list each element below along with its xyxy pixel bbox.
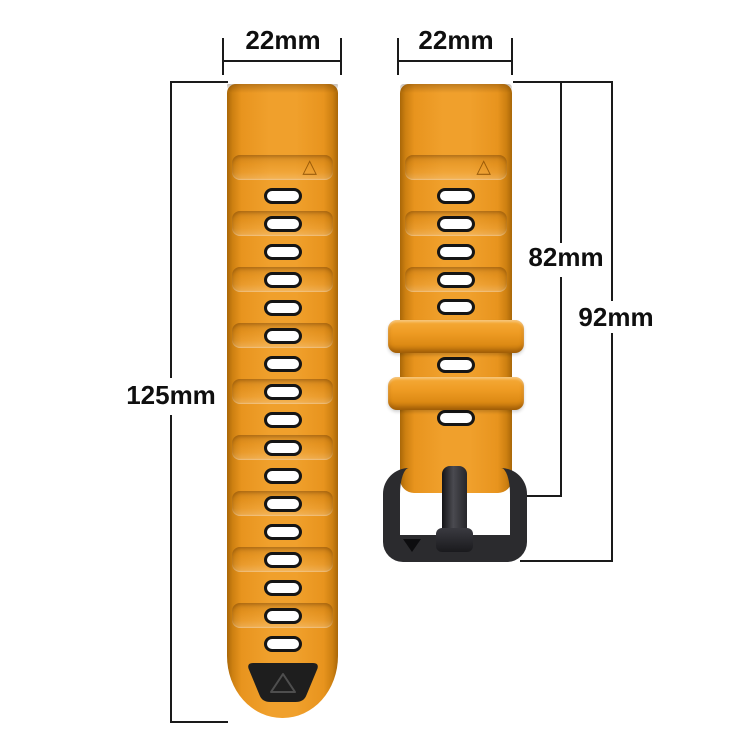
strap-hole xyxy=(437,244,475,260)
left-strap: △ xyxy=(227,84,338,718)
dim-82-line-lower xyxy=(560,277,562,497)
dim-right-width-tick-left xyxy=(397,38,399,75)
triangle-marker-icon: △ xyxy=(476,157,491,176)
dim-92-line-upper xyxy=(611,82,613,301)
strap-dimension-diagram: △ △ 22mm 22mm 125mm 82mm 92mm xyxy=(0,0,750,750)
strap-hole xyxy=(264,440,302,456)
strap-hole xyxy=(437,188,475,204)
strap-hole xyxy=(264,216,302,232)
dim-left-width-tick-left xyxy=(222,38,224,75)
strap-hole xyxy=(264,188,302,204)
strap-hole xyxy=(437,216,475,232)
buckle-prong-base xyxy=(436,528,473,552)
strap-hole xyxy=(437,299,475,315)
dim-125-line-upper xyxy=(170,81,172,378)
strap-tip-black xyxy=(242,661,324,705)
dim-125-ext-top xyxy=(171,81,228,83)
strap-hole xyxy=(264,412,302,428)
strap-hole xyxy=(437,272,475,288)
strap-hole xyxy=(264,580,302,596)
dim-92-line-lower xyxy=(611,333,613,562)
dim-left-width-tick-right xyxy=(340,38,342,75)
dim-92-tick-bottom xyxy=(520,560,613,562)
strap-hole xyxy=(264,468,302,484)
strap-hole xyxy=(264,272,302,288)
dim-left-width-label: 22mm xyxy=(245,25,320,56)
dim-82-tick-bottom xyxy=(527,495,562,497)
strap-hole xyxy=(264,244,302,260)
triangle-panel: △ xyxy=(405,155,507,180)
dim-right-width-tick-right xyxy=(511,38,513,75)
buckle-arrow-icon xyxy=(403,539,421,552)
dim-right-width-line xyxy=(397,60,513,62)
strap-hole xyxy=(264,552,302,568)
strap-hole xyxy=(437,357,475,373)
dim-82-label: 82mm xyxy=(528,242,603,273)
strap-hole xyxy=(264,636,302,652)
dim-92-label: 92mm xyxy=(578,302,653,333)
strap-hole xyxy=(437,410,475,426)
strap-hole xyxy=(264,300,302,316)
dim-125-line-lower xyxy=(170,415,172,723)
triangle-panel: △ xyxy=(232,155,333,180)
dim-125-label: 125mm xyxy=(126,380,216,411)
dim-82-line-upper xyxy=(560,82,562,243)
dim-right-width-label: 22mm xyxy=(418,25,493,56)
triangle-marker-icon: △ xyxy=(302,157,317,176)
keeper-loop xyxy=(388,320,524,353)
dim-right-ext-top xyxy=(513,81,613,83)
strap-hole xyxy=(264,356,302,372)
right-strap: △ xyxy=(400,84,512,493)
strap-hole xyxy=(264,384,302,400)
strap-hole xyxy=(264,328,302,344)
strap-hole xyxy=(264,608,302,624)
dim-left-width-line xyxy=(222,60,342,62)
dim-125-ext-bottom xyxy=(171,721,228,723)
strap-hole xyxy=(264,496,302,512)
strap-hole xyxy=(264,524,302,540)
keeper-loop xyxy=(388,377,524,410)
